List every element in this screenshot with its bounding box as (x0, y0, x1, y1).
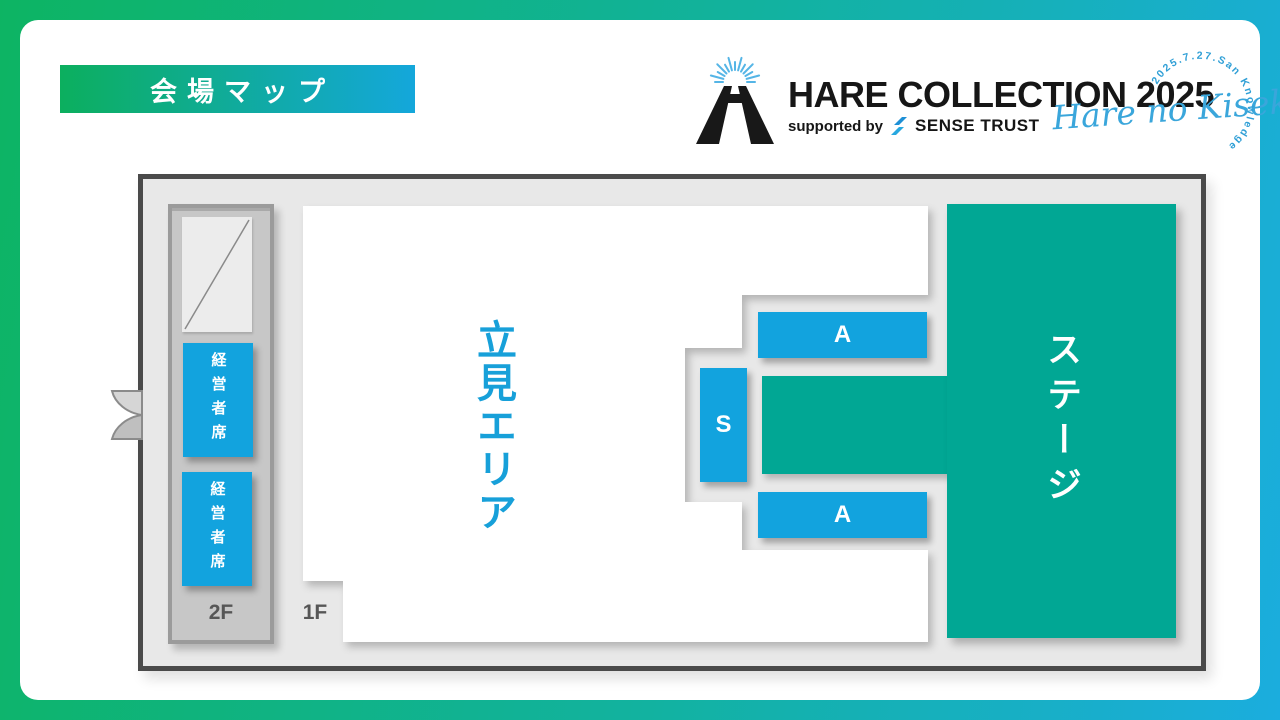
date-arc-text: 2025.7.27.San Knowledge (1149, 50, 1257, 154)
seat-block-s: S (700, 368, 747, 482)
sponsor-logo-icon (890, 116, 908, 136)
floor-label-2f: 2F (196, 601, 246, 625)
sponsor-line: supported by SENSE TRUST (788, 116, 1040, 136)
date-arc: 2025.7.27.San Knowledge (1136, 40, 1268, 166)
executive-seat-upper-label: 経営者席 (208, 352, 229, 448)
seat-block-a-front-label: A (834, 321, 851, 349)
seat-block-a-front: A (758, 312, 927, 358)
venue-map-badge: 会場マップ (60, 65, 415, 113)
event-logo: HARE COLLECTION 2025 supported by SENSE … (680, 46, 1280, 166)
entrance-door-icon (108, 389, 143, 441)
page-background: 会場マップ (0, 0, 1280, 720)
svg-text:2025.7.27.San Knowledge: 2025.7.27.San Knowledge (1149, 50, 1257, 154)
seat-block-a-rear: A (758, 492, 927, 538)
stage-label: ステージ (1036, 331, 1087, 511)
venue-map-badge-label: 会場マップ (140, 70, 335, 109)
runway-extension (762, 376, 952, 474)
venue-map: ステージ A S A 立見エリア 経営者 (138, 174, 1206, 671)
standing-area-label: 立見エリア (464, 319, 522, 534)
executive-seat-upper: 経営者席 (183, 343, 253, 457)
seat-block-a-rear-label: A (834, 501, 851, 529)
supported-by-text: supported by (788, 118, 883, 135)
standing-area-label-wrap: 立見エリア (464, 319, 522, 534)
stage-block: ステージ (947, 204, 1176, 638)
sponsor-name: SENSE TRUST (915, 116, 1040, 136)
diagonal-line-icon (182, 217, 252, 332)
floor-label-1f: 1F (293, 601, 337, 625)
executive-seat-lower: 経営者席 (182, 472, 252, 586)
diagonal-marked-block (182, 217, 252, 332)
mountain-icon (692, 56, 778, 146)
seat-block-s-label: S (715, 411, 731, 439)
content-panel: 会場マップ (20, 20, 1260, 700)
executive-seat-lower-label: 経営者席 (207, 481, 228, 577)
